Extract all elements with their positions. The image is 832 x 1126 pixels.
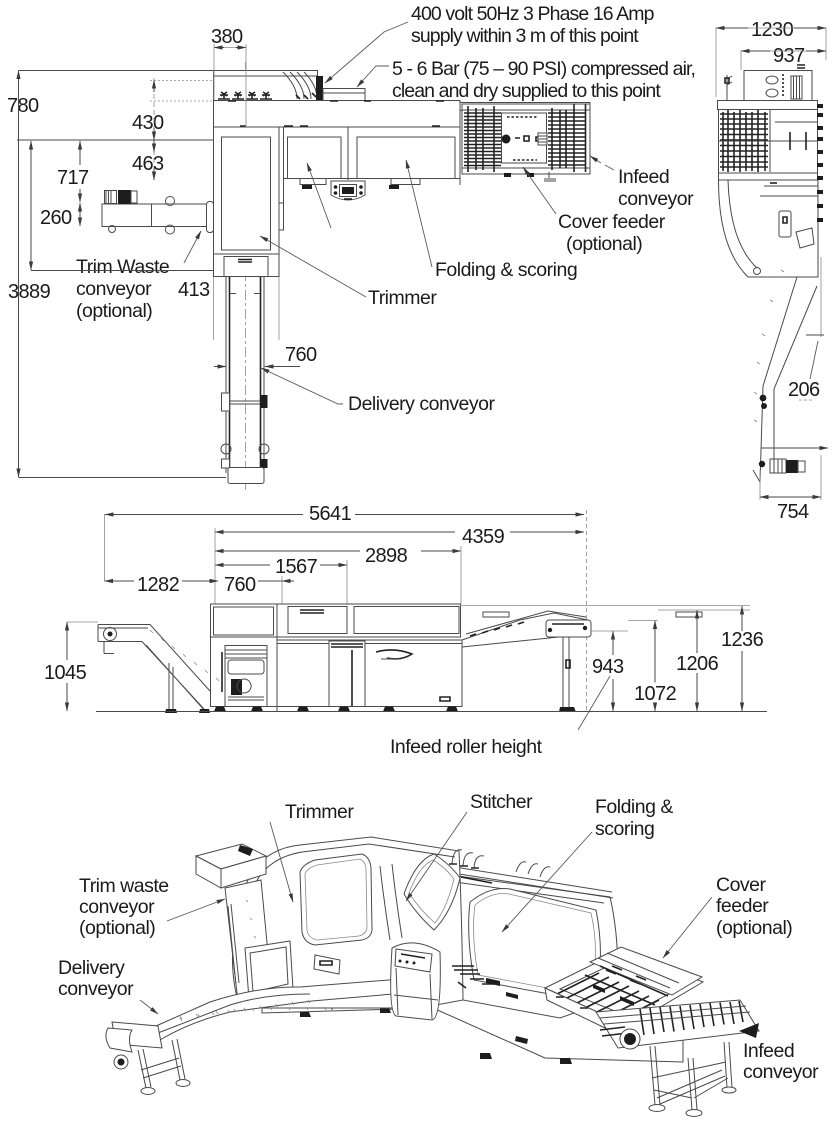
svg-text:clean and dry supplied to this: clean and dry supplied to this point bbox=[392, 80, 661, 102]
svg-text:conveyor: conveyor bbox=[58, 978, 134, 1000]
svg-text:1567: 1567 bbox=[275, 556, 318, 578]
svg-text:760: 760 bbox=[224, 574, 256, 596]
svg-text:Stitcher: Stitcher bbox=[470, 791, 533, 813]
svg-text:430: 430 bbox=[132, 112, 164, 134]
svg-text:supply within 3 m of this poin: supply within 3 m of this point bbox=[411, 25, 639, 47]
svg-text:Infeed roller height: Infeed roller height bbox=[390, 736, 543, 758]
svg-text:Trimmer: Trimmer bbox=[285, 801, 354, 823]
svg-text:Delivery: Delivery bbox=[58, 957, 125, 979]
svg-text:scoring: scoring bbox=[595, 818, 654, 840]
svg-text:(optional): (optional) bbox=[79, 917, 155, 939]
svg-text:1045: 1045 bbox=[44, 662, 87, 684]
svg-text:1282: 1282 bbox=[137, 574, 180, 596]
svg-text:754: 754 bbox=[777, 501, 809, 523]
svg-text:Infeed: Infeed bbox=[618, 166, 669, 188]
svg-text:feeder: feeder bbox=[716, 895, 769, 917]
svg-text:Cover feeder: Cover feeder bbox=[558, 211, 666, 233]
svg-text:937: 937 bbox=[773, 45, 805, 67]
svg-text:conveyor: conveyor bbox=[743, 1061, 819, 1083]
svg-text:conveyor: conveyor bbox=[76, 278, 152, 300]
svg-text:380: 380 bbox=[211, 26, 243, 48]
svg-text:717: 717 bbox=[57, 167, 89, 189]
svg-text:400 volt 50Hz 3 Phase 16 Amp: 400 volt 50Hz 3 Phase 16 Amp bbox=[411, 3, 655, 25]
svg-text:5641: 5641 bbox=[309, 503, 352, 525]
svg-text:(optional): (optional) bbox=[566, 233, 642, 255]
svg-text:943: 943 bbox=[592, 656, 624, 678]
svg-text:206: 206 bbox=[788, 379, 820, 401]
svg-text:413: 413 bbox=[178, 279, 210, 301]
svg-text:conveyor: conveyor bbox=[79, 896, 155, 918]
svg-text:(optional): (optional) bbox=[716, 917, 792, 939]
svg-text:conveyor: conveyor bbox=[618, 188, 694, 210]
svg-text:Delivery conveyor: Delivery conveyor bbox=[348, 393, 495, 415]
svg-text:Trim Waste: Trim Waste bbox=[76, 256, 169, 278]
svg-text:4359: 4359 bbox=[462, 526, 505, 548]
svg-text:Infeed: Infeed bbox=[743, 1040, 794, 1062]
svg-text:3889: 3889 bbox=[8, 281, 51, 303]
svg-text:Folding &: Folding & bbox=[595, 796, 673, 818]
svg-text:(optional): (optional) bbox=[76, 300, 152, 322]
svg-text:1206: 1206 bbox=[676, 653, 719, 675]
svg-text:5 - 6 Bar (75 – 90 PSI) compre: 5 - 6 Bar (75 – 90 PSI) compressed air, bbox=[392, 58, 695, 80]
svg-text:2898: 2898 bbox=[365, 545, 408, 567]
svg-text:Folding & scoring: Folding & scoring bbox=[435, 259, 577, 281]
svg-text:1072: 1072 bbox=[634, 683, 677, 705]
svg-text:Trimmer: Trimmer bbox=[368, 287, 437, 309]
svg-text:260: 260 bbox=[40, 207, 72, 229]
svg-text:1236: 1236 bbox=[721, 629, 764, 651]
svg-text:780: 780 bbox=[7, 95, 39, 117]
svg-text:1230: 1230 bbox=[751, 19, 794, 41]
svg-text:463: 463 bbox=[132, 153, 164, 175]
svg-text:Cover: Cover bbox=[716, 874, 767, 896]
svg-text:Trim waste: Trim waste bbox=[79, 875, 169, 897]
svg-text:760: 760 bbox=[285, 344, 317, 366]
